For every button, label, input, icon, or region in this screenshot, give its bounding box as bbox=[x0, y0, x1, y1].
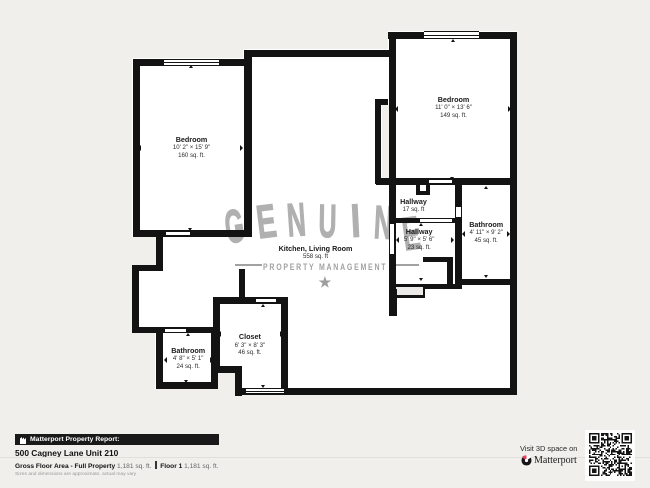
svg-text:U: U bbox=[318, 195, 337, 248]
svg-text:E: E bbox=[254, 196, 280, 250]
svg-text:I: I bbox=[349, 194, 362, 248]
svg-text:N: N bbox=[285, 194, 307, 247]
